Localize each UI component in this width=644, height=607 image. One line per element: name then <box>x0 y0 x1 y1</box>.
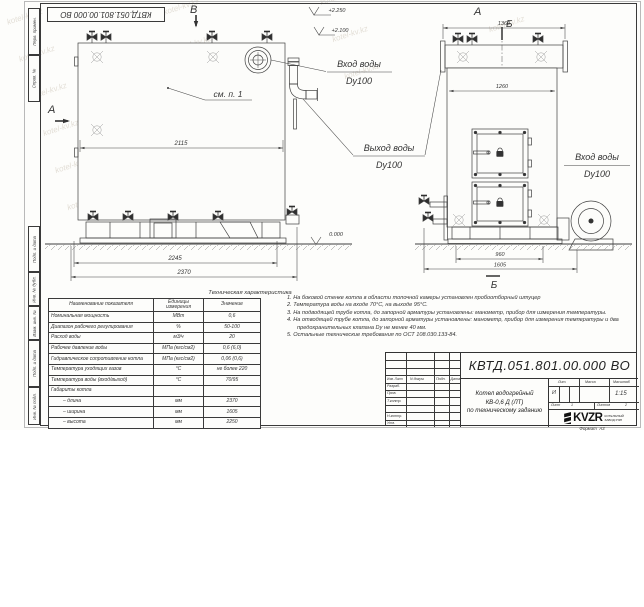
position-mark-icon <box>207 51 219 63</box>
product-line-2: КВ-0,6 Д (ЛТ) <box>486 399 524 408</box>
spec-row: Номинальная мощностьМВт0,6 <box>49 312 261 323</box>
title-block: КВТД.051.801.00.000 ВО Изм. Лист N докум… <box>385 352 637 426</box>
note-item: 5. Остальные технические требования по О… <box>287 332 634 339</box>
kvzr-logo-text: KVZR <box>573 412 602 424</box>
sheets-label: Листов <box>597 404 610 408</box>
side-section-b-bottom: Б <box>491 280 498 291</box>
dim-2370: 2370 <box>176 270 191 276</box>
side-view-label-a: А <box>473 6 481 18</box>
spec-row: – длинамм2370 <box>49 396 261 407</box>
row-nkontr: Н.контр. <box>387 415 402 419</box>
spec-row: Расход водым3/ч20 <box>49 333 261 344</box>
support-frame <box>80 219 286 243</box>
front-inlet-dn: Dy100 <box>346 76 372 86</box>
row-tkontr: Т.контр. <box>387 400 402 404</box>
front-view <box>45 32 352 251</box>
scale-label: Масштаб <box>613 381 630 385</box>
section-mark-a-arrow <box>63 119 70 123</box>
position-mark-icon <box>538 214 550 226</box>
section-mark-a: А <box>47 104 55 116</box>
dim-1260: 1260 <box>496 84 509 90</box>
position-mark-icon <box>91 51 103 63</box>
col-data: Дата <box>451 378 460 382</box>
ground-hatch <box>415 244 632 250</box>
lit-value: И <box>552 391 556 397</box>
spec-col-name: Наименование показателя <box>49 299 154 312</box>
technical-notes: 1. На боковой стенке котла в области топ… <box>287 295 634 339</box>
spec-header-row: Наименование показателя Единицы измерени… <box>49 299 261 312</box>
doc-number: КВТД.051.801.00.000 ВО <box>460 353 638 379</box>
spec-table: Наименование показателя Единицы измерени… <box>48 298 261 429</box>
elev-0000-arrow <box>311 237 321 245</box>
side-stub-valves <box>419 196 448 241</box>
company-name-line2: ЗАВОД РЭП <box>604 418 623 422</box>
row-razrab: Разраб. <box>387 385 400 389</box>
spec-row: Гидравлическое сопротивление котлаМПа (к… <box>49 354 261 365</box>
sheets-value: 2 <box>625 404 627 408</box>
product-name: Котел водогрейный КВ-0,6 Д (ЛТ) по техни… <box>460 379 548 427</box>
row-utv: Утв. <box>387 422 395 426</box>
note-item: 4. На отводящей трубе котла, до запорной… <box>287 317 634 332</box>
kvzr-logo-icon <box>564 412 571 424</box>
product-line-3: по техническому заданию <box>467 407 542 416</box>
col-podp: Подп. <box>436 378 446 382</box>
side-view <box>415 33 632 250</box>
spec-row: Температура уходящих газов°Сне более 220 <box>49 364 261 375</box>
position-mark-icon <box>453 214 465 226</box>
col-docnum: N докум. <box>410 378 425 382</box>
outlet-leader-2 <box>425 70 441 155</box>
front-outlet-dn: Dy100 <box>376 160 402 170</box>
position-mark-icon <box>91 124 103 136</box>
ground-hatch <box>45 244 352 250</box>
drawing-sheet: kotel-kv.kzkotel-kv.kzkotel-kv.kzkotel-k… <box>0 0 644 430</box>
fan-blower <box>557 201 613 250</box>
company-name: КОТЕЛЬНЫЙ ЗАВОД РЭП <box>604 414 623 422</box>
side-base <box>448 227 562 244</box>
position-mark-icon <box>535 51 547 63</box>
side-inlet-label: Вход воды <box>575 152 619 162</box>
elev-2100-arrow <box>314 27 324 35</box>
spec-row: Температура воды (вход/выход)°С70/95 <box>49 375 261 386</box>
product-line-1: Котел водогрейный <box>476 390 534 399</box>
front-inlet-label: Вход воды <box>337 59 381 69</box>
company-logo: KVZR КОТЕЛЬНЫЙ ЗАВОД РЭП <box>549 409 639 427</box>
mass-label: Масса <box>585 381 596 385</box>
spec-row: – ширинамм1605 <box>49 407 261 418</box>
spec-row: Габариты котла <box>49 386 261 397</box>
outlet-leader-1 <box>303 99 353 155</box>
note-item: 2. Температура воды на входе 70°С, на вы… <box>287 302 634 309</box>
elev-0000: 0.000 <box>329 232 344 238</box>
col-izm-list: Изм. Лист <box>387 378 403 381</box>
title-block-right: Лит. Масса Масштаб И 1:15 Лист 1 Листов … <box>548 379 638 427</box>
elev-2100: +2.100 <box>332 28 350 34</box>
front-outlet-label: Выход воды <box>364 143 415 153</box>
spec-col-value: Значение <box>204 299 261 312</box>
dim-2115: 2115 <box>174 141 189 147</box>
position-mark-icon <box>457 51 469 63</box>
side-top-valve-icons <box>453 34 543 46</box>
top-valve-icons <box>87 32 272 44</box>
dim-2245: 2245 <box>167 256 182 262</box>
dim-1605: 1605 <box>494 263 507 269</box>
sheet-label: Лист <box>551 404 560 408</box>
elev-2250-arrow <box>309 7 319 15</box>
side-section-b-top: Б <box>506 19 513 30</box>
section-mark-v: В <box>190 4 197 16</box>
see-note-label: см. п. 1 <box>214 89 243 99</box>
scale-value: 1:15 <box>615 391 627 397</box>
lit-label: Лит. <box>558 381 566 385</box>
spec-row: Рабочее давление водыМПа (кгс/см2)0,6 (6… <box>49 343 261 354</box>
spec-col-units: Единицы измерения <box>154 299 204 312</box>
row-prov: Пров. <box>387 392 396 396</box>
note-item: 1. На боковой стенке котла в области топ… <box>287 295 634 302</box>
side-inlet-dn: Dy100 <box>584 169 610 179</box>
dim-960: 960 <box>495 252 505 258</box>
elev-2250: +2.250 <box>329 8 347 14</box>
spec-row: – высотамм2250 <box>49 417 261 428</box>
section-mark-v-arrow <box>194 21 198 28</box>
sheet-value: 1 <box>571 404 573 408</box>
spec-row: Диапазон рабочего регулирования%50-100 <box>49 322 261 333</box>
